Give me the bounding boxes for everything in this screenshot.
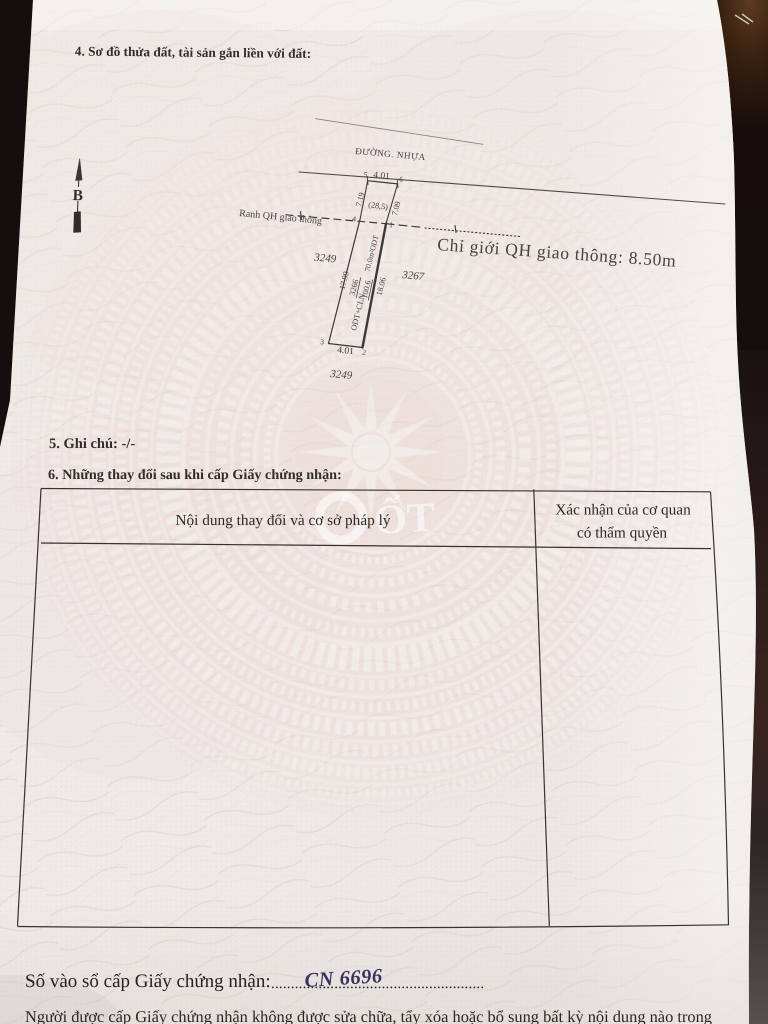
svg-text:Xác nhận của cơ quan: Xác nhận của cơ quan (555, 502, 691, 519)
svg-text:Nội dung thay đổi và cơ sở phá: Nội dung thay đổi và cơ sở pháp lý (175, 512, 390, 529)
svg-text:4.01: 4.01 (373, 171, 391, 183)
svg-text:Người được cấp Giấy chứng nhận: Người được cấp Giấy chứng nhận không đượ… (25, 1007, 712, 1024)
svg-text:5. Ghi chú: -/-: 5. Ghi chú: -/- (49, 436, 135, 452)
svg-text:3267: 3267 (401, 269, 425, 283)
svg-text:B: B (72, 187, 83, 204)
svg-text:4.01: 4.01 (337, 346, 355, 358)
svg-text:6. Những thay đổi sau khi cấp: 6. Những thay đổi sau khi cấp Giấy chứng… (48, 467, 342, 483)
svg-text:4. Sơ đồ thửa đất, tài sản gắn: 4. Sơ đồ thửa đất, tài sản gắn liền với … (75, 44, 311, 61)
svg-text:có thẩm quyền: có thẩm quyền (577, 525, 667, 542)
svg-text:3249: 3249 (329, 368, 353, 382)
svg-text:Số vào sổ cấp Giấy chứng nhận:: Số vào sổ cấp Giấy chứng nhận: (25, 971, 271, 992)
svg-text:3249: 3249 (313, 251, 337, 265)
